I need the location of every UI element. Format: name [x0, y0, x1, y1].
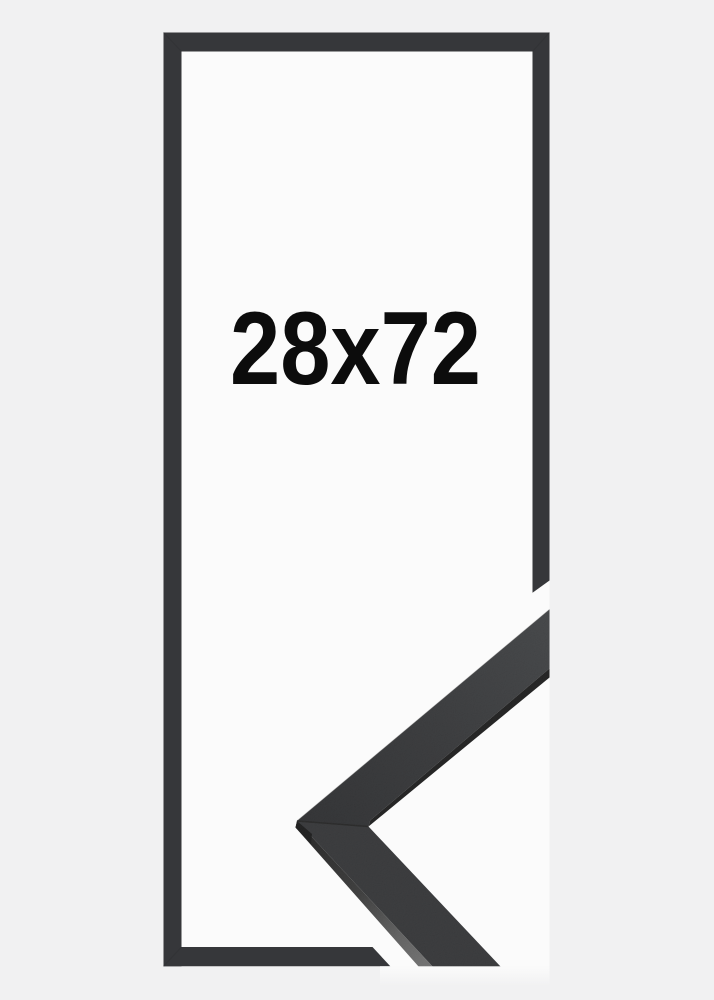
- svg-text:28x72: 28x72: [230, 291, 481, 407]
